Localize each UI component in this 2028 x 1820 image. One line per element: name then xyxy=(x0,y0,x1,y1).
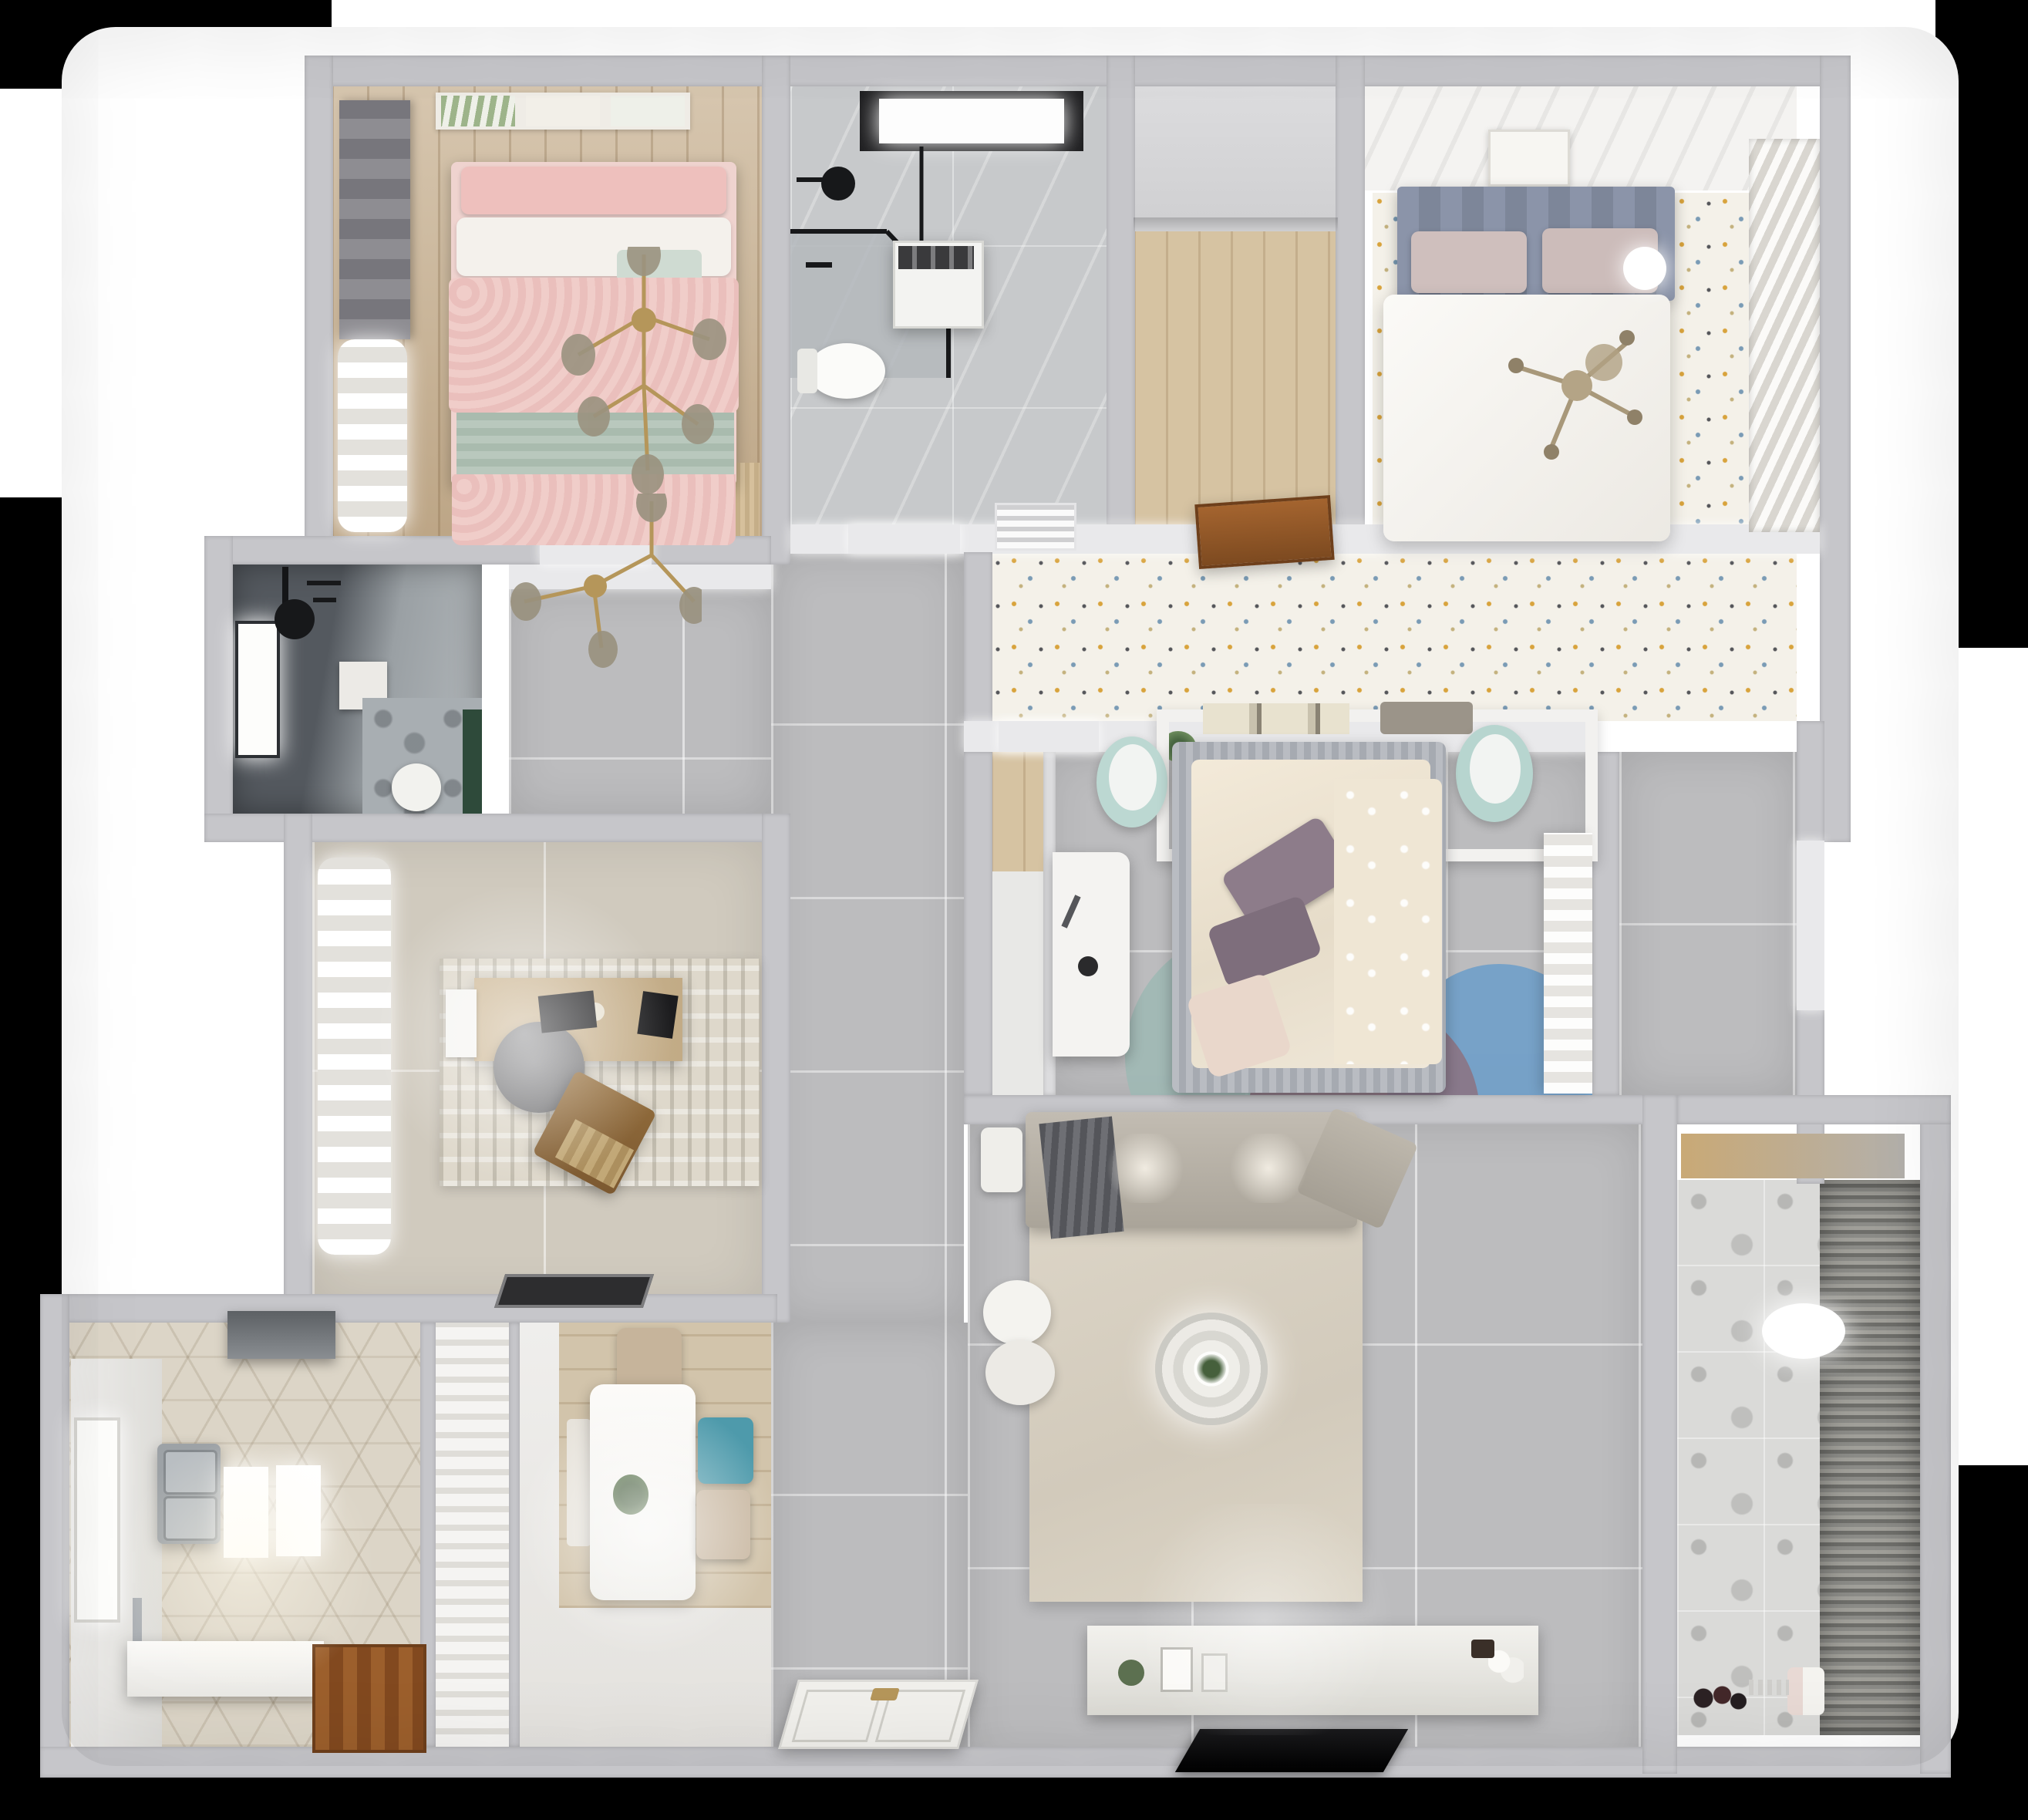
branch-chandelier-gold-2 xyxy=(478,494,702,671)
tv-flatscreen xyxy=(1175,1729,1408,1772)
wall-bedroom-bath-split xyxy=(762,56,790,565)
guest-shower-head xyxy=(262,567,362,652)
console-dark-items xyxy=(1471,1640,1494,1658)
study-laptop xyxy=(637,991,678,1039)
kids-duvet-floral xyxy=(1334,779,1442,1064)
console-frames xyxy=(1161,1647,1193,1692)
wall-balcony-top xyxy=(1677,1095,1951,1124)
walk-in-closet-floor xyxy=(1134,231,1338,524)
wall-kids-left xyxy=(964,752,992,1095)
bed-pink-pillow-row xyxy=(461,167,726,214)
wall-kitchen-top xyxy=(40,1294,777,1323)
ottoman-white-2 xyxy=(985,1340,1055,1405)
pantry-cabinet-strip xyxy=(436,1323,509,1747)
balcony-venetian-blinds xyxy=(1820,1180,1920,1735)
floorplan-render xyxy=(0,0,2028,1820)
living-side-table xyxy=(981,1127,1022,1192)
matte-top-strip xyxy=(332,0,1935,46)
wall-closet-master-split xyxy=(1336,56,1365,524)
wall-pantry-b xyxy=(509,1323,520,1747)
office-chair-monitor xyxy=(538,990,598,1033)
wall-bathguest-left xyxy=(204,536,233,842)
toilet-guest xyxy=(392,763,441,811)
balcony-toys-dark xyxy=(1693,1683,1747,1714)
dining-chair-teal xyxy=(698,1417,753,1484)
balcony-access-floor xyxy=(1619,752,1797,1095)
open-door-leaf-brown xyxy=(1194,495,1334,569)
window-right-bay xyxy=(1797,841,1824,1010)
wall-left-bedroom xyxy=(305,56,333,565)
sink-basin-1 xyxy=(163,1450,217,1495)
branch-chandelier-gold xyxy=(532,247,756,501)
entry-door-handles-gold xyxy=(870,1688,900,1700)
toilet-ensuite xyxy=(808,343,885,399)
matte-left-strip xyxy=(0,89,73,497)
kitchen-wood-entry xyxy=(312,1644,426,1753)
master-pillow-left xyxy=(1411,231,1527,293)
wall-top xyxy=(305,56,1828,86)
kitchen-light-board-2 xyxy=(276,1465,321,1556)
cross-chandelier-gold xyxy=(1488,308,1666,470)
kids-wardrobe-sheer xyxy=(1544,833,1592,1094)
washing-machine xyxy=(893,241,984,329)
kids-desk xyxy=(1053,852,1130,1057)
range-hood xyxy=(227,1311,335,1359)
shelf-box xyxy=(1380,702,1473,734)
wall-study-right xyxy=(762,814,790,1323)
window-glow xyxy=(879,99,1064,143)
sofa-seat-glow-2 xyxy=(1226,1134,1311,1203)
entry-door-inset-left xyxy=(792,1690,882,1742)
console-frame-2 xyxy=(1201,1653,1228,1692)
sink-basin-2 xyxy=(163,1496,217,1541)
door-opening-kids xyxy=(999,721,1099,752)
master-ceiling-panel xyxy=(1365,86,1797,190)
door-opening-bath-ensuite xyxy=(848,524,960,554)
wall-art-frame-2 xyxy=(526,96,600,126)
hallway-floor-vertical xyxy=(771,552,964,1323)
roman-blind xyxy=(339,100,410,339)
balcony-rack xyxy=(1749,1680,1789,1695)
kitchen-light-board-1 xyxy=(224,1467,268,1558)
closet-rail-shadow xyxy=(1134,217,1338,231)
kitchen-faucet xyxy=(133,1598,142,1646)
pendant-plant-center xyxy=(613,1475,648,1515)
wall-corridor-right xyxy=(964,552,992,725)
wall-living-balcony xyxy=(1642,1095,1677,1774)
study-curtain xyxy=(318,858,391,1255)
balcony-bottles xyxy=(1787,1667,1824,1715)
wall-balcony-right xyxy=(1920,1095,1951,1774)
master-wardrobe-louvered xyxy=(1749,139,1820,532)
dining-chair-top xyxy=(617,1328,682,1391)
kitchen-island xyxy=(127,1641,324,1697)
washing-machine-panel xyxy=(898,246,974,269)
dressing-nook-floor xyxy=(991,752,1043,871)
kitchen-window xyxy=(74,1417,120,1623)
balcony-light-ellipse xyxy=(1762,1303,1845,1359)
wall-study-left xyxy=(284,814,312,1323)
ac-vent xyxy=(995,503,1076,551)
study-papers xyxy=(446,989,477,1057)
wall-bath-closet-split xyxy=(1107,56,1135,524)
sheer-curtain-bedroom-pink xyxy=(338,339,407,532)
dining-chair-tan xyxy=(696,1490,750,1559)
kids-desk-lamp xyxy=(1078,956,1098,976)
balcony-shelf-wood xyxy=(1681,1134,1905,1178)
master-corridor-floor xyxy=(964,552,1797,721)
study-doormat xyxy=(494,1274,654,1308)
wall-art-frame-green xyxy=(441,96,515,126)
double-sink xyxy=(157,1444,221,1544)
sofa-seat-glow-1 xyxy=(1103,1134,1187,1203)
nook-lower-floor xyxy=(991,871,1043,1095)
walk-in-closet-backwall xyxy=(1134,85,1338,231)
master-wall-art xyxy=(1488,130,1570,187)
wall-kitchen-left xyxy=(40,1294,69,1775)
ottoman-white-1 xyxy=(983,1280,1051,1345)
media-console xyxy=(1087,1626,1538,1715)
lamp-plant-detail xyxy=(1197,1354,1226,1384)
entry-double-door xyxy=(778,1680,979,1749)
toilet-ensuite-tank xyxy=(797,349,817,393)
wall-art-frame-3 xyxy=(611,96,685,126)
wall-master-right xyxy=(1820,56,1851,842)
master-ball-light xyxy=(1623,247,1666,290)
guest-bath-green-cabinet xyxy=(463,709,482,814)
shelf-books xyxy=(1203,703,1349,734)
console-plant xyxy=(1118,1660,1144,1686)
